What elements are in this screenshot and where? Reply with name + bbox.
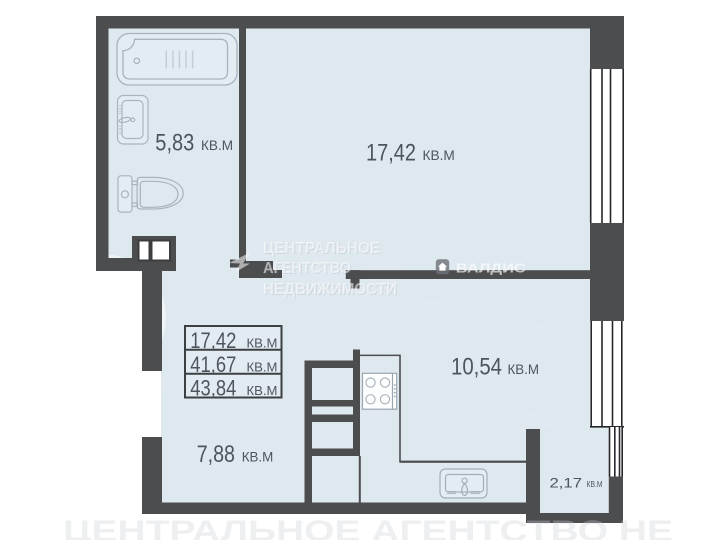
- svg-text:41,67: 41,67: [190, 352, 236, 377]
- svg-text:ЦЕНТРАЛЬНОЕ: ЦЕНТРАЛЬНОЕ: [263, 240, 380, 257]
- svg-text:5,83: 5,83: [155, 130, 194, 157]
- svg-text:КВ.М: КВ.М: [242, 449, 274, 465]
- svg-text:АГЕНТСТВО: АГЕНТСТВО: [263, 260, 351, 277]
- svg-text:КВ.М: КВ.М: [587, 479, 603, 489]
- svg-text:НЕДВИЖИМОСТИ: НЕДВИЖИМОСТИ: [263, 281, 397, 298]
- svg-text:КВ.М: КВ.М: [423, 147, 455, 163]
- svg-text:43,84: 43,84: [190, 375, 236, 400]
- svg-text:ВАЛДИС: ВАЛДИС: [456, 261, 527, 276]
- svg-text:2,17: 2,17: [550, 475, 583, 490]
- svg-text:17,42: 17,42: [366, 140, 416, 167]
- svg-text:ЦЕНТРАЛЬНОЕ АГЕНТСТВО НЕ: ЦЕНТРАЛЬНОЕ АГЕНТСТВО НЕ: [63, 515, 673, 540]
- svg-text:10,54: 10,54: [451, 354, 502, 381]
- svg-text:КВ.М: КВ.М: [508, 361, 540, 377]
- svg-text:17,42: 17,42: [190, 328, 236, 353]
- svg-text:КВ.М: КВ.М: [247, 360, 278, 375]
- svg-text:КВ.М: КВ.М: [247, 383, 278, 398]
- svg-text:КВ.М: КВ.М: [247, 336, 278, 351]
- svg-text:7,88: 7,88: [197, 441, 235, 468]
- svg-text:КВ.М: КВ.М: [201, 137, 233, 153]
